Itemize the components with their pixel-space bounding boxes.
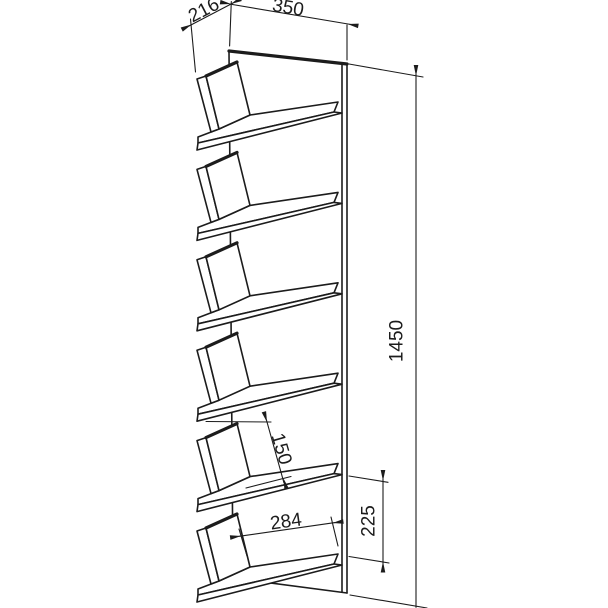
dim-board-height-label: 150	[266, 431, 295, 467]
dimension-top-depth: 216	[181, 0, 242, 72]
dim-height-label: 1450	[387, 320, 408, 362]
shelf-module-4	[197, 333, 342, 421]
dimension-shelf-width: 284	[230, 509, 344, 556]
technical-drawing-canvas: 216 350 1450 150 225	[0, 0, 608, 608]
dim-top-width-label: 350	[271, 0, 306, 21]
shelf-module-3	[197, 243, 342, 331]
dim-shelf-gap-label: 225	[359, 505, 380, 537]
dimension-shelf-gap: 225	[349, 470, 389, 573]
dim-shelf-width-label: 284	[269, 509, 304, 534]
drawing-page: 216 350 1450 150 225	[0, 0, 608, 608]
shelf-module-2	[197, 152, 342, 240]
shelf-module-1	[197, 62, 342, 150]
